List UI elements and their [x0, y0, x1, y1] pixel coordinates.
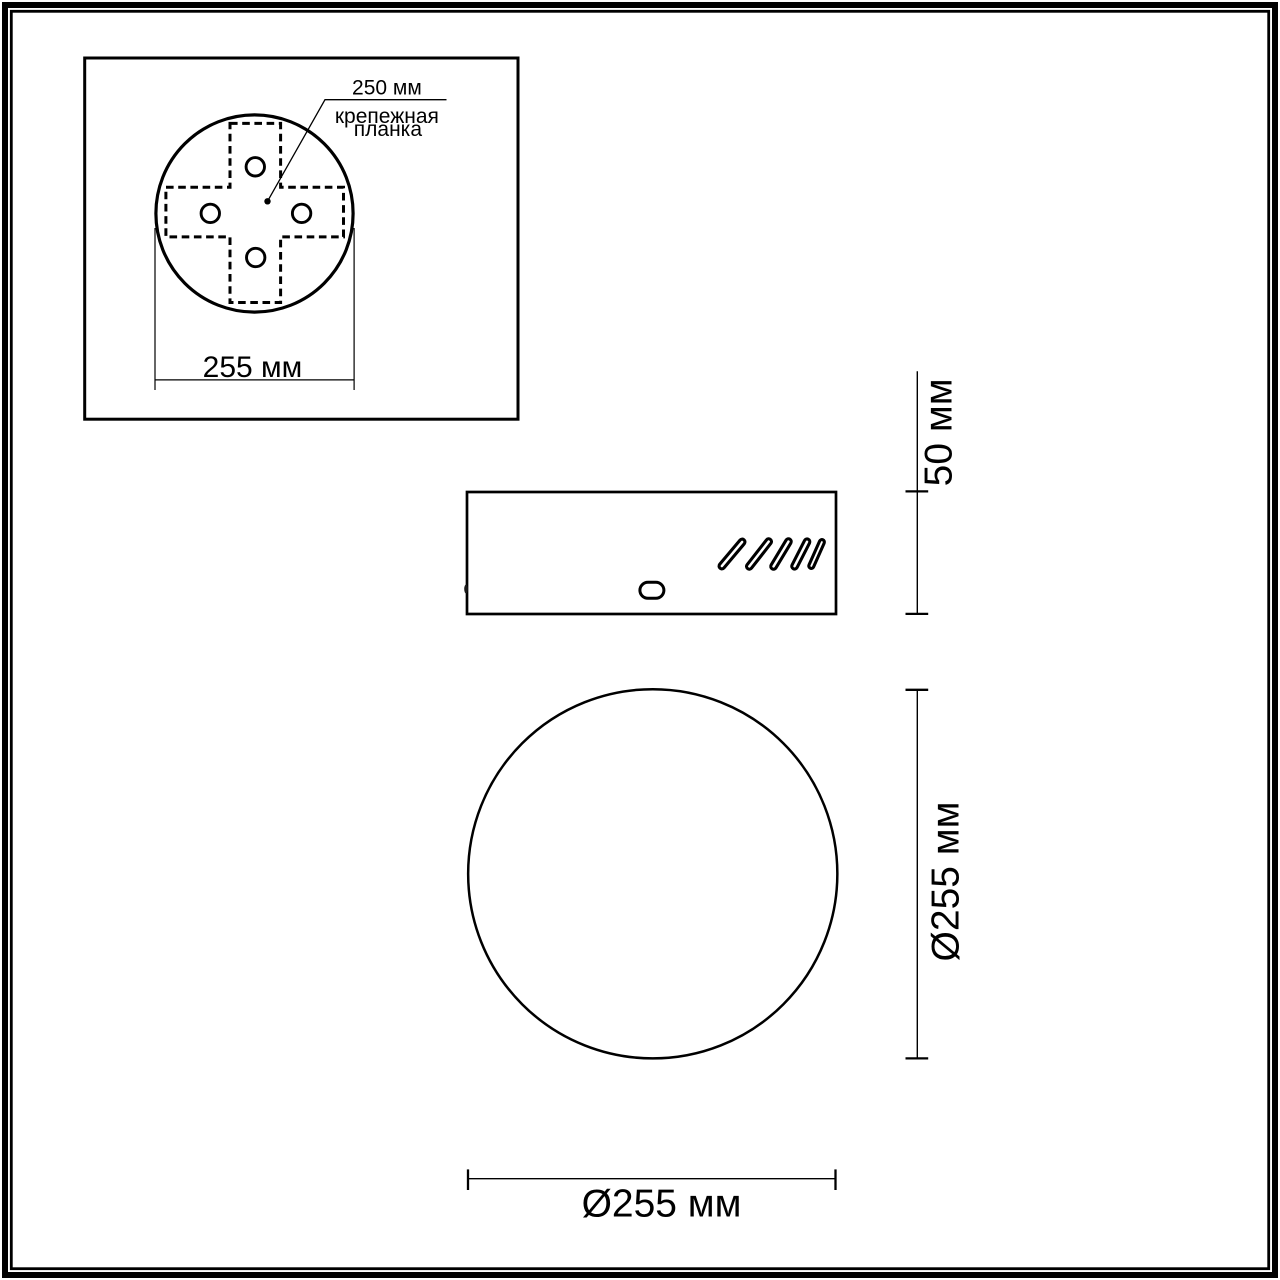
svg-text:250 мм: 250 мм: [352, 77, 422, 100]
svg-text:Ø255 мм: Ø255 мм: [582, 1183, 742, 1226]
svg-text:50 мм: 50 мм: [918, 378, 961, 486]
svg-text:планка: планка: [354, 118, 423, 141]
svg-text:255 мм: 255 мм: [203, 351, 303, 384]
svg-text:Ø255 мм: Ø255 мм: [925, 802, 968, 962]
